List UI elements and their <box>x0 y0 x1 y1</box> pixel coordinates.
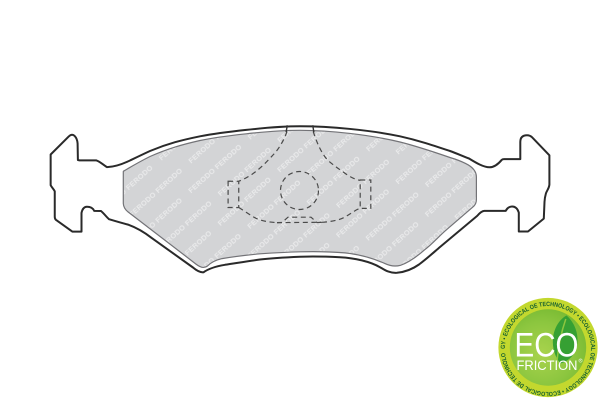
svg-text:FRICTION: FRICTION <box>517 358 578 373</box>
svg-text:®: ® <box>579 358 583 365</box>
